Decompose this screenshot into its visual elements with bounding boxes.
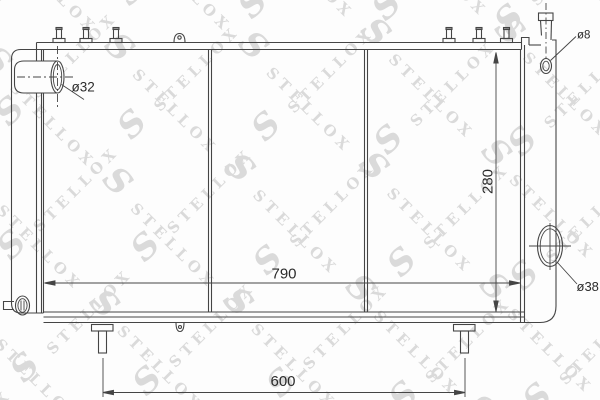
outlet-port (529, 223, 571, 270)
mounting-stud (473, 28, 485, 43)
mounting-pin-left (92, 325, 114, 354)
mounting-stud (53, 28, 65, 43)
mounting-stud (110, 28, 122, 43)
dim-label-pin-spacing: 600 (270, 373, 295, 390)
mounting-pin-right (454, 325, 476, 354)
radiator-body (4, 3, 578, 397)
mounting-stud (443, 28, 455, 43)
retaining-clip-bottom (176, 323, 184, 332)
filler-neck (539, 3, 554, 58)
retaining-clip-top (174, 34, 185, 43)
dimension-labels: ø32 ø8 280 790 ø38 600 (72, 30, 599, 391)
dim-label-inlet-diameter: ø32 (72, 80, 95, 95)
right-tank-outline (521, 38, 542, 323)
core-divider-left (209, 50, 212, 313)
dim-label-core-height: 280 (480, 169, 497, 194)
mounting-studs (53, 28, 513, 43)
bleed-hole (541, 59, 552, 74)
radiator-drawing: ø32 ø8 280 790 ø38 600 (0, 0, 600, 400)
top-tank (37, 43, 522, 50)
leader-line-outlet (558, 263, 578, 285)
core-divider-right (365, 50, 368, 313)
mounting-stud (501, 28, 513, 43)
mounting-stud (80, 28, 92, 43)
radiator-drawing-page: SSTELLOXSSTELLOXSSTELLOXSSTELLOXSSTELLOX… (0, 0, 600, 400)
dim-label-bleed-diameter: ø8 (577, 30, 590, 42)
dim-label-core-width: 790 (271, 266, 296, 283)
dim-label-outlet-diameter: ø38 (577, 279, 599, 294)
